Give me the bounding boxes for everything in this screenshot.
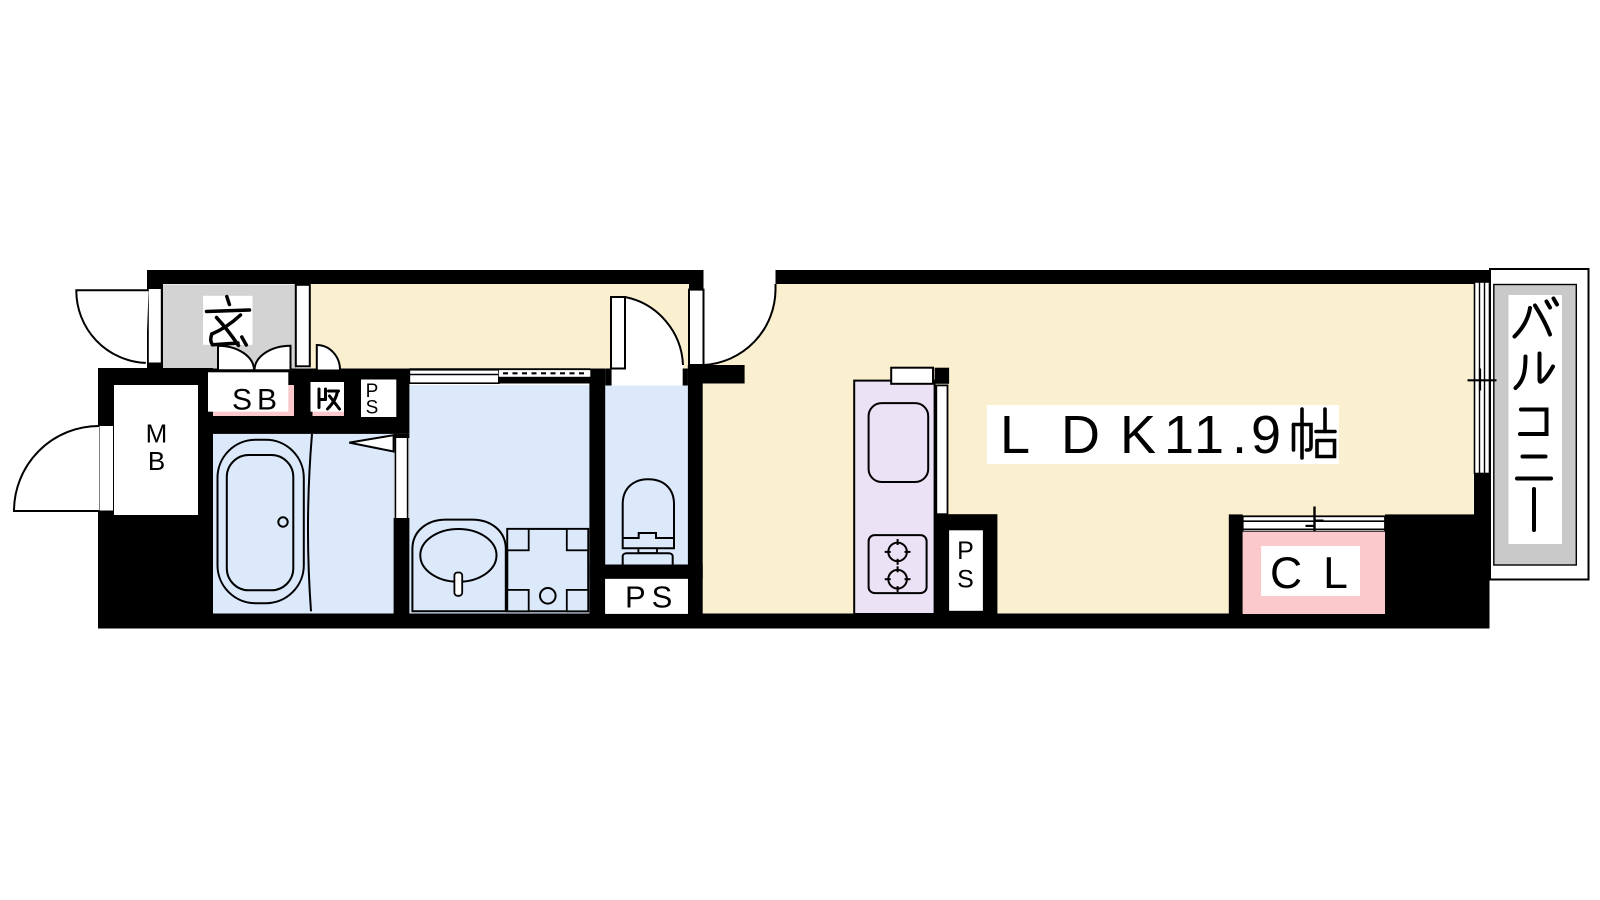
svg-text:S: S xyxy=(957,566,974,594)
svg-text:P: P xyxy=(957,537,974,565)
svg-text:S: S xyxy=(366,398,379,419)
svg-text:SB: SB xyxy=(232,384,282,417)
svg-text:M: M xyxy=(146,419,168,449)
svg-text:B: B xyxy=(148,446,165,476)
svg-text:PS: PS xyxy=(625,580,678,615)
svg-text:CL: CL xyxy=(1270,549,1369,598)
